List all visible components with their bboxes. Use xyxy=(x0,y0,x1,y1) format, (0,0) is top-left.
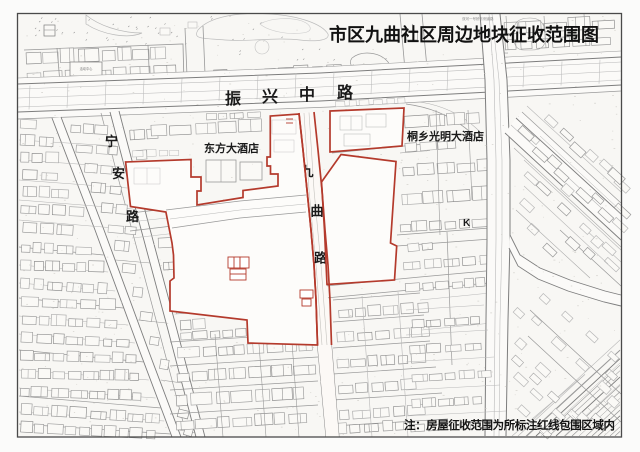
svg-text:市区九曲社区周边地块征收范围图: 市区九曲社区周边地块征收范围图 xyxy=(329,24,599,45)
svg-text:曲: 曲 xyxy=(311,204,324,219)
svg-text:兴: 兴 xyxy=(262,88,278,106)
svg-text:桐乡光明大酒店: 桐乡光明大酒店 xyxy=(407,129,484,143)
svg-text:注：房屋征收范围为所标注红线包围区域内: 注：房屋征收范围为所标注红线包围区域内 xyxy=(404,418,615,432)
svg-text:振: 振 xyxy=(225,89,241,108)
svg-text:路: 路 xyxy=(126,209,140,224)
svg-text:活动中心: 活动中心 xyxy=(80,66,94,71)
svg-text:中: 中 xyxy=(299,85,315,104)
svg-text:双河一号桥东侧道路: 双河一号桥东侧道路 xyxy=(462,16,494,21)
svg-text:K: K xyxy=(463,218,471,229)
svg-text:安: 安 xyxy=(112,166,125,181)
svg-text:宁: 宁 xyxy=(105,134,118,149)
svg-text:路: 路 xyxy=(337,83,354,102)
svg-text:东方大酒店: 东方大酒店 xyxy=(204,141,259,155)
